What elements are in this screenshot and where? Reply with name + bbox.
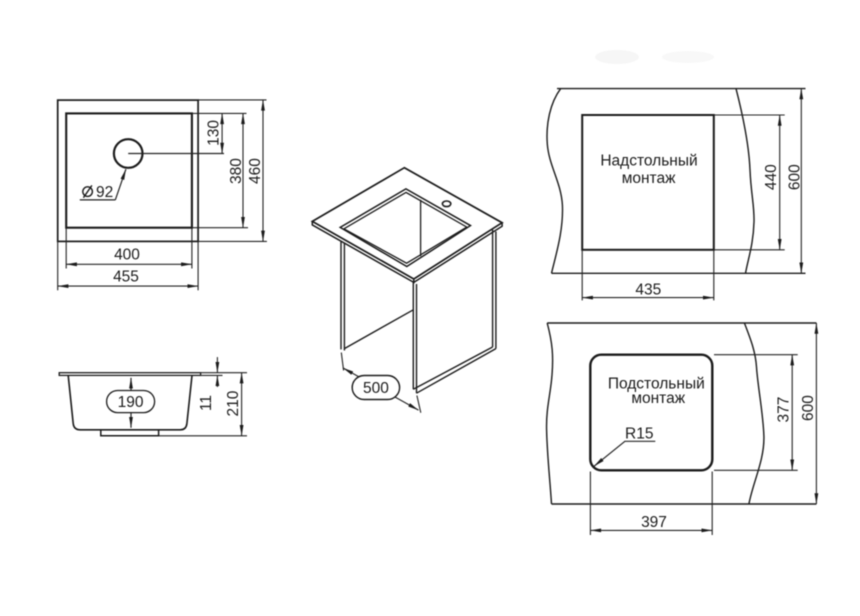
svg-text:380: 380 bbox=[228, 158, 245, 184]
svg-text:190: 190 bbox=[118, 394, 144, 411]
svg-text:397: 397 bbox=[641, 514, 667, 531]
svg-text:Надстольный: Надстольный bbox=[600, 153, 697, 170]
svg-text:377: 377 bbox=[776, 397, 793, 423]
svg-text:500: 500 bbox=[363, 380, 389, 397]
svg-text:R15: R15 bbox=[625, 425, 653, 442]
svg-text:435: 435 bbox=[635, 282, 661, 299]
svg-text:монтаж: монтаж bbox=[631, 390, 685, 407]
svg-text:600: 600 bbox=[800, 395, 817, 421]
svg-text:11: 11 bbox=[198, 395, 215, 411]
svg-text:монтаж: монтаж bbox=[622, 170, 676, 187]
svg-text:455: 455 bbox=[113, 269, 139, 286]
svg-text:400: 400 bbox=[114, 247, 140, 264]
svg-text:210: 210 bbox=[225, 390, 242, 416]
svg-text:440: 440 bbox=[763, 164, 780, 190]
svg-text:600: 600 bbox=[787, 164, 804, 190]
svg-text:92: 92 bbox=[96, 184, 113, 201]
svg-text:460: 460 bbox=[247, 158, 264, 184]
svg-text:130: 130 bbox=[206, 120, 223, 146]
